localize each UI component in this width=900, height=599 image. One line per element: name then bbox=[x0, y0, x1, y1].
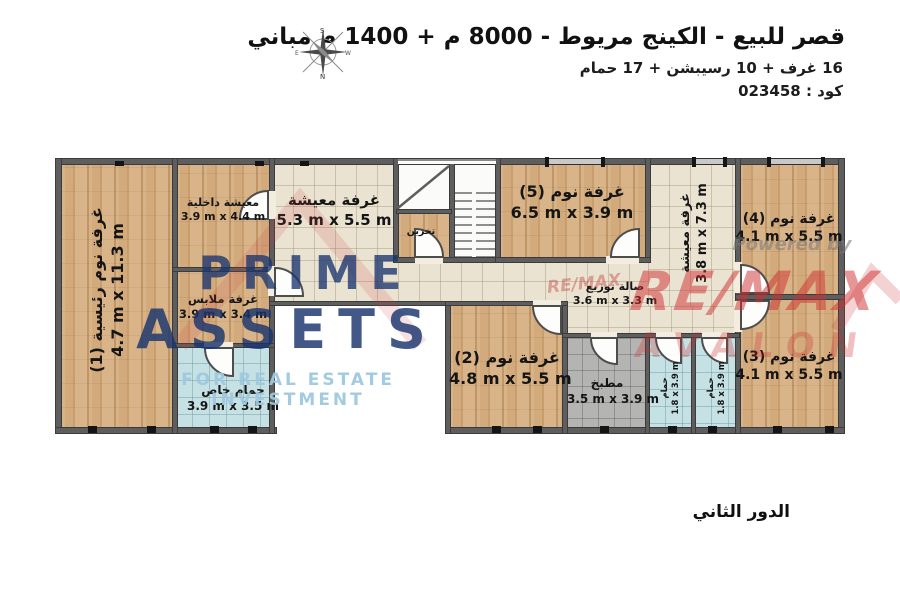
wall-tick bbox=[492, 426, 501, 433]
room-dims: 3.9 m x 3.4 m bbox=[173, 307, 273, 322]
room-dims: 4.7 m x 11.3 m bbox=[108, 195, 129, 385]
wall-tick bbox=[601, 157, 605, 167]
wall-tick bbox=[210, 426, 219, 433]
room-label-inner-living: معيشة داخلية 3.9 m x 4.4 m bbox=[173, 196, 273, 225]
wall-tick bbox=[248, 426, 257, 433]
page-subtitle: 16 غرف + 10 رسيبشن + 17 حمام bbox=[343, 59, 843, 77]
wall-segment bbox=[691, 333, 696, 434]
room-name: غرفة نوم (3) bbox=[731, 348, 847, 366]
room-name: حمام خاص bbox=[177, 383, 289, 399]
room-dims: 4.1 m x 5.5 m bbox=[731, 228, 847, 246]
room-dims: 4.1 m x 5.5 m bbox=[731, 366, 847, 384]
room-name: حمام bbox=[660, 342, 671, 434]
compass-east-label: E bbox=[295, 50, 299, 57]
wall-segment bbox=[495, 257, 651, 263]
stair-treads bbox=[476, 192, 495, 257]
room-dims: 6.5 m x 3.9 m bbox=[497, 203, 647, 224]
window-marker bbox=[769, 158, 823, 165]
top-wall-thin-section bbox=[398, 159, 496, 164]
wall-segment bbox=[735, 294, 845, 300]
wall-tick bbox=[88, 426, 97, 433]
wall-tick bbox=[115, 161, 124, 166]
room-name: غرفة نوم (5) bbox=[497, 182, 647, 203]
wall-segment bbox=[269, 301, 451, 306]
wall-tick bbox=[300, 161, 309, 166]
wall-tick bbox=[821, 157, 825, 167]
room-label-dressing-room: غرفة ملابس 3.9 m x 3.4 m bbox=[173, 292, 273, 322]
room-name: غرفة ملابس bbox=[173, 292, 273, 307]
room-label-distribution-hall: صالة توزيع 3.6 m x 3.3 m bbox=[545, 280, 685, 309]
window-marker bbox=[547, 158, 604, 165]
wall-tick bbox=[255, 161, 264, 166]
floor-name-label: الدور الثاني bbox=[530, 502, 790, 522]
room-name: مطبخ bbox=[567, 376, 647, 392]
room-name: حمام bbox=[706, 342, 717, 434]
compass-west-label: W bbox=[345, 50, 351, 57]
room-name: صالة توزيع bbox=[545, 280, 685, 294]
room-name: غرفة معيشة bbox=[273, 191, 395, 211]
room-dims: 5.3 m x 5.5 m bbox=[273, 211, 395, 231]
room-dims: 1.8 x 3.9 m bbox=[717, 342, 728, 434]
wall-segment bbox=[393, 257, 501, 263]
room-label-bedroom-3: غرفة نوم (3) 4.1 m x 5.5 m bbox=[731, 348, 847, 384]
floor-plan: غرفة نوم رئيسية (1) 4.7 m x 11.3 m معيشة… bbox=[55, 158, 845, 440]
wall-tick bbox=[545, 157, 549, 167]
room-name: غرفة نوم رئيسية (1) bbox=[87, 195, 108, 385]
room-label-living-room-1: غرفة معيشة 5.3 m x 5.5 m bbox=[273, 191, 395, 230]
room-dims: 3.9 m x 4.4 m bbox=[173, 210, 273, 224]
room-dims: 3.9 m x 3.5 m bbox=[177, 399, 289, 415]
wall-segment bbox=[562, 333, 740, 338]
wall-tick bbox=[533, 426, 542, 433]
room-label-master-bedroom: غرفة نوم رئيسية (1) 4.7 m x 11.3 m bbox=[87, 195, 133, 385]
compass-south-label: S bbox=[320, 27, 325, 35]
wall-tick bbox=[767, 157, 771, 167]
room-label-storage: تخزين bbox=[391, 226, 451, 238]
room-label-bedroom-4: غرفة نوم (4) 4.1 m x 5.5 m bbox=[731, 210, 847, 246]
wall-tick bbox=[147, 426, 156, 433]
listing-code: كود : 023458 bbox=[543, 82, 843, 100]
room-label-bathroom-2: حمام 1.8 x 3.9 m bbox=[706, 342, 728, 434]
wall-tick bbox=[773, 426, 782, 433]
room-name: معيشة داخلية bbox=[173, 196, 273, 210]
room-dims: 1.8 x 3.9 m bbox=[671, 342, 682, 434]
wall-tick bbox=[825, 426, 834, 433]
room-dims: 3.5 m x 3.9 m bbox=[567, 392, 647, 408]
room-dims: 3.6 m x 3.3 m bbox=[545, 294, 685, 308]
room-label-bathroom-1: حمام 1.8 x 3.9 m bbox=[660, 342, 682, 434]
compass-north-label: N bbox=[320, 73, 325, 80]
stair-treads bbox=[453, 192, 472, 257]
room-name: تخزين bbox=[391, 226, 451, 238]
floor-stair-landing bbox=[396, 164, 452, 213]
room-label-bedroom-5: غرفة نوم (5) 6.5 m x 3.9 m bbox=[497, 182, 647, 224]
wall-tick bbox=[723, 157, 727, 167]
room-name: غرفة نوم (4) bbox=[731, 210, 847, 228]
room-dims: 4.8 m x 5.5 m bbox=[449, 369, 565, 390]
wall-segment bbox=[55, 158, 62, 434]
room-label-bedroom-2: غرفة نوم (2) 4.8 m x 5.5 m bbox=[449, 348, 565, 390]
wall-segment bbox=[396, 209, 452, 214]
room-label-kitchen: مطبخ 3.5 m x 3.9 m bbox=[567, 376, 647, 407]
room-label-private-bathroom: حمام خاص 3.9 m x 3.5 m bbox=[177, 383, 289, 414]
wall-segment bbox=[172, 343, 275, 348]
wall-tick bbox=[600, 426, 609, 433]
room-name: غرفة نوم (2) bbox=[449, 348, 565, 369]
compass-rose-icon: S N E W bbox=[295, 24, 351, 80]
room-dims: 3.8 m x 7.3 m bbox=[695, 148, 712, 318]
wall-segment bbox=[172, 267, 275, 272]
